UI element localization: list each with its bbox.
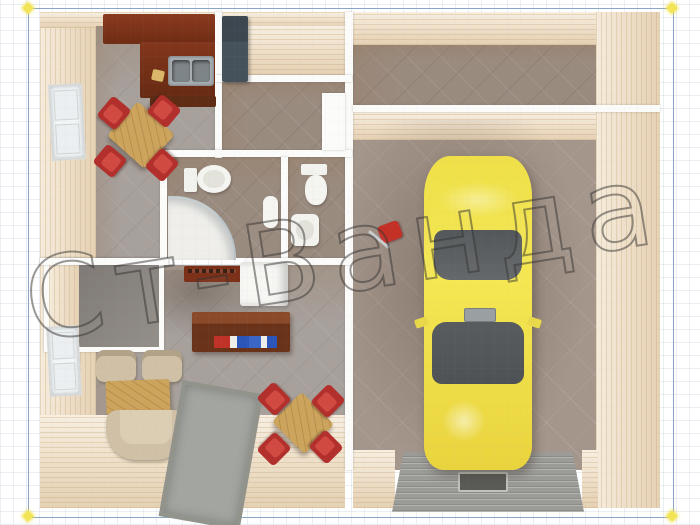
car-rearview-mirror	[464, 308, 496, 322]
wall-living-top-left	[40, 258, 168, 265]
kitchen-window	[48, 83, 86, 161]
toilet-bowl	[197, 165, 231, 193]
wall-kitchen-hall	[215, 12, 222, 158]
wall-bathrooms-top	[160, 150, 352, 157]
inspection-pit-cover	[458, 472, 508, 492]
wall-workshop-garage	[353, 105, 660, 112]
toilet-bowl	[305, 175, 327, 205]
armchair	[142, 350, 182, 382]
wash-basin	[291, 214, 319, 246]
armchair	[96, 350, 136, 382]
desk	[192, 312, 290, 352]
yellow-car	[424, 156, 532, 470]
toilet-tank	[184, 168, 197, 192]
kitchen-sink	[168, 56, 214, 86]
car-trunk-shine	[438, 182, 518, 218]
car-hood-shine	[442, 400, 486, 442]
car-rear-window	[434, 230, 522, 280]
water-heater	[263, 196, 278, 228]
floorplan-render: Ст-Ванда	[0, 0, 700, 525]
wall-between-bathrooms	[281, 157, 288, 265]
room-workshop	[353, 45, 596, 105]
toilet-tank	[301, 164, 327, 175]
tv-shelf-unit	[184, 266, 242, 282]
workshop-wall-face	[353, 12, 596, 45]
room-storage	[79, 263, 159, 347]
car-windshield	[432, 322, 524, 384]
cutting-board	[151, 69, 165, 82]
living-window	[46, 325, 82, 397]
kitchen-cabinet-upper	[103, 14, 215, 44]
exterior-wall-right	[596, 12, 660, 508]
wardrobe	[222, 16, 248, 82]
fridge	[240, 262, 288, 306]
wall-hallway-stub	[322, 93, 345, 150]
